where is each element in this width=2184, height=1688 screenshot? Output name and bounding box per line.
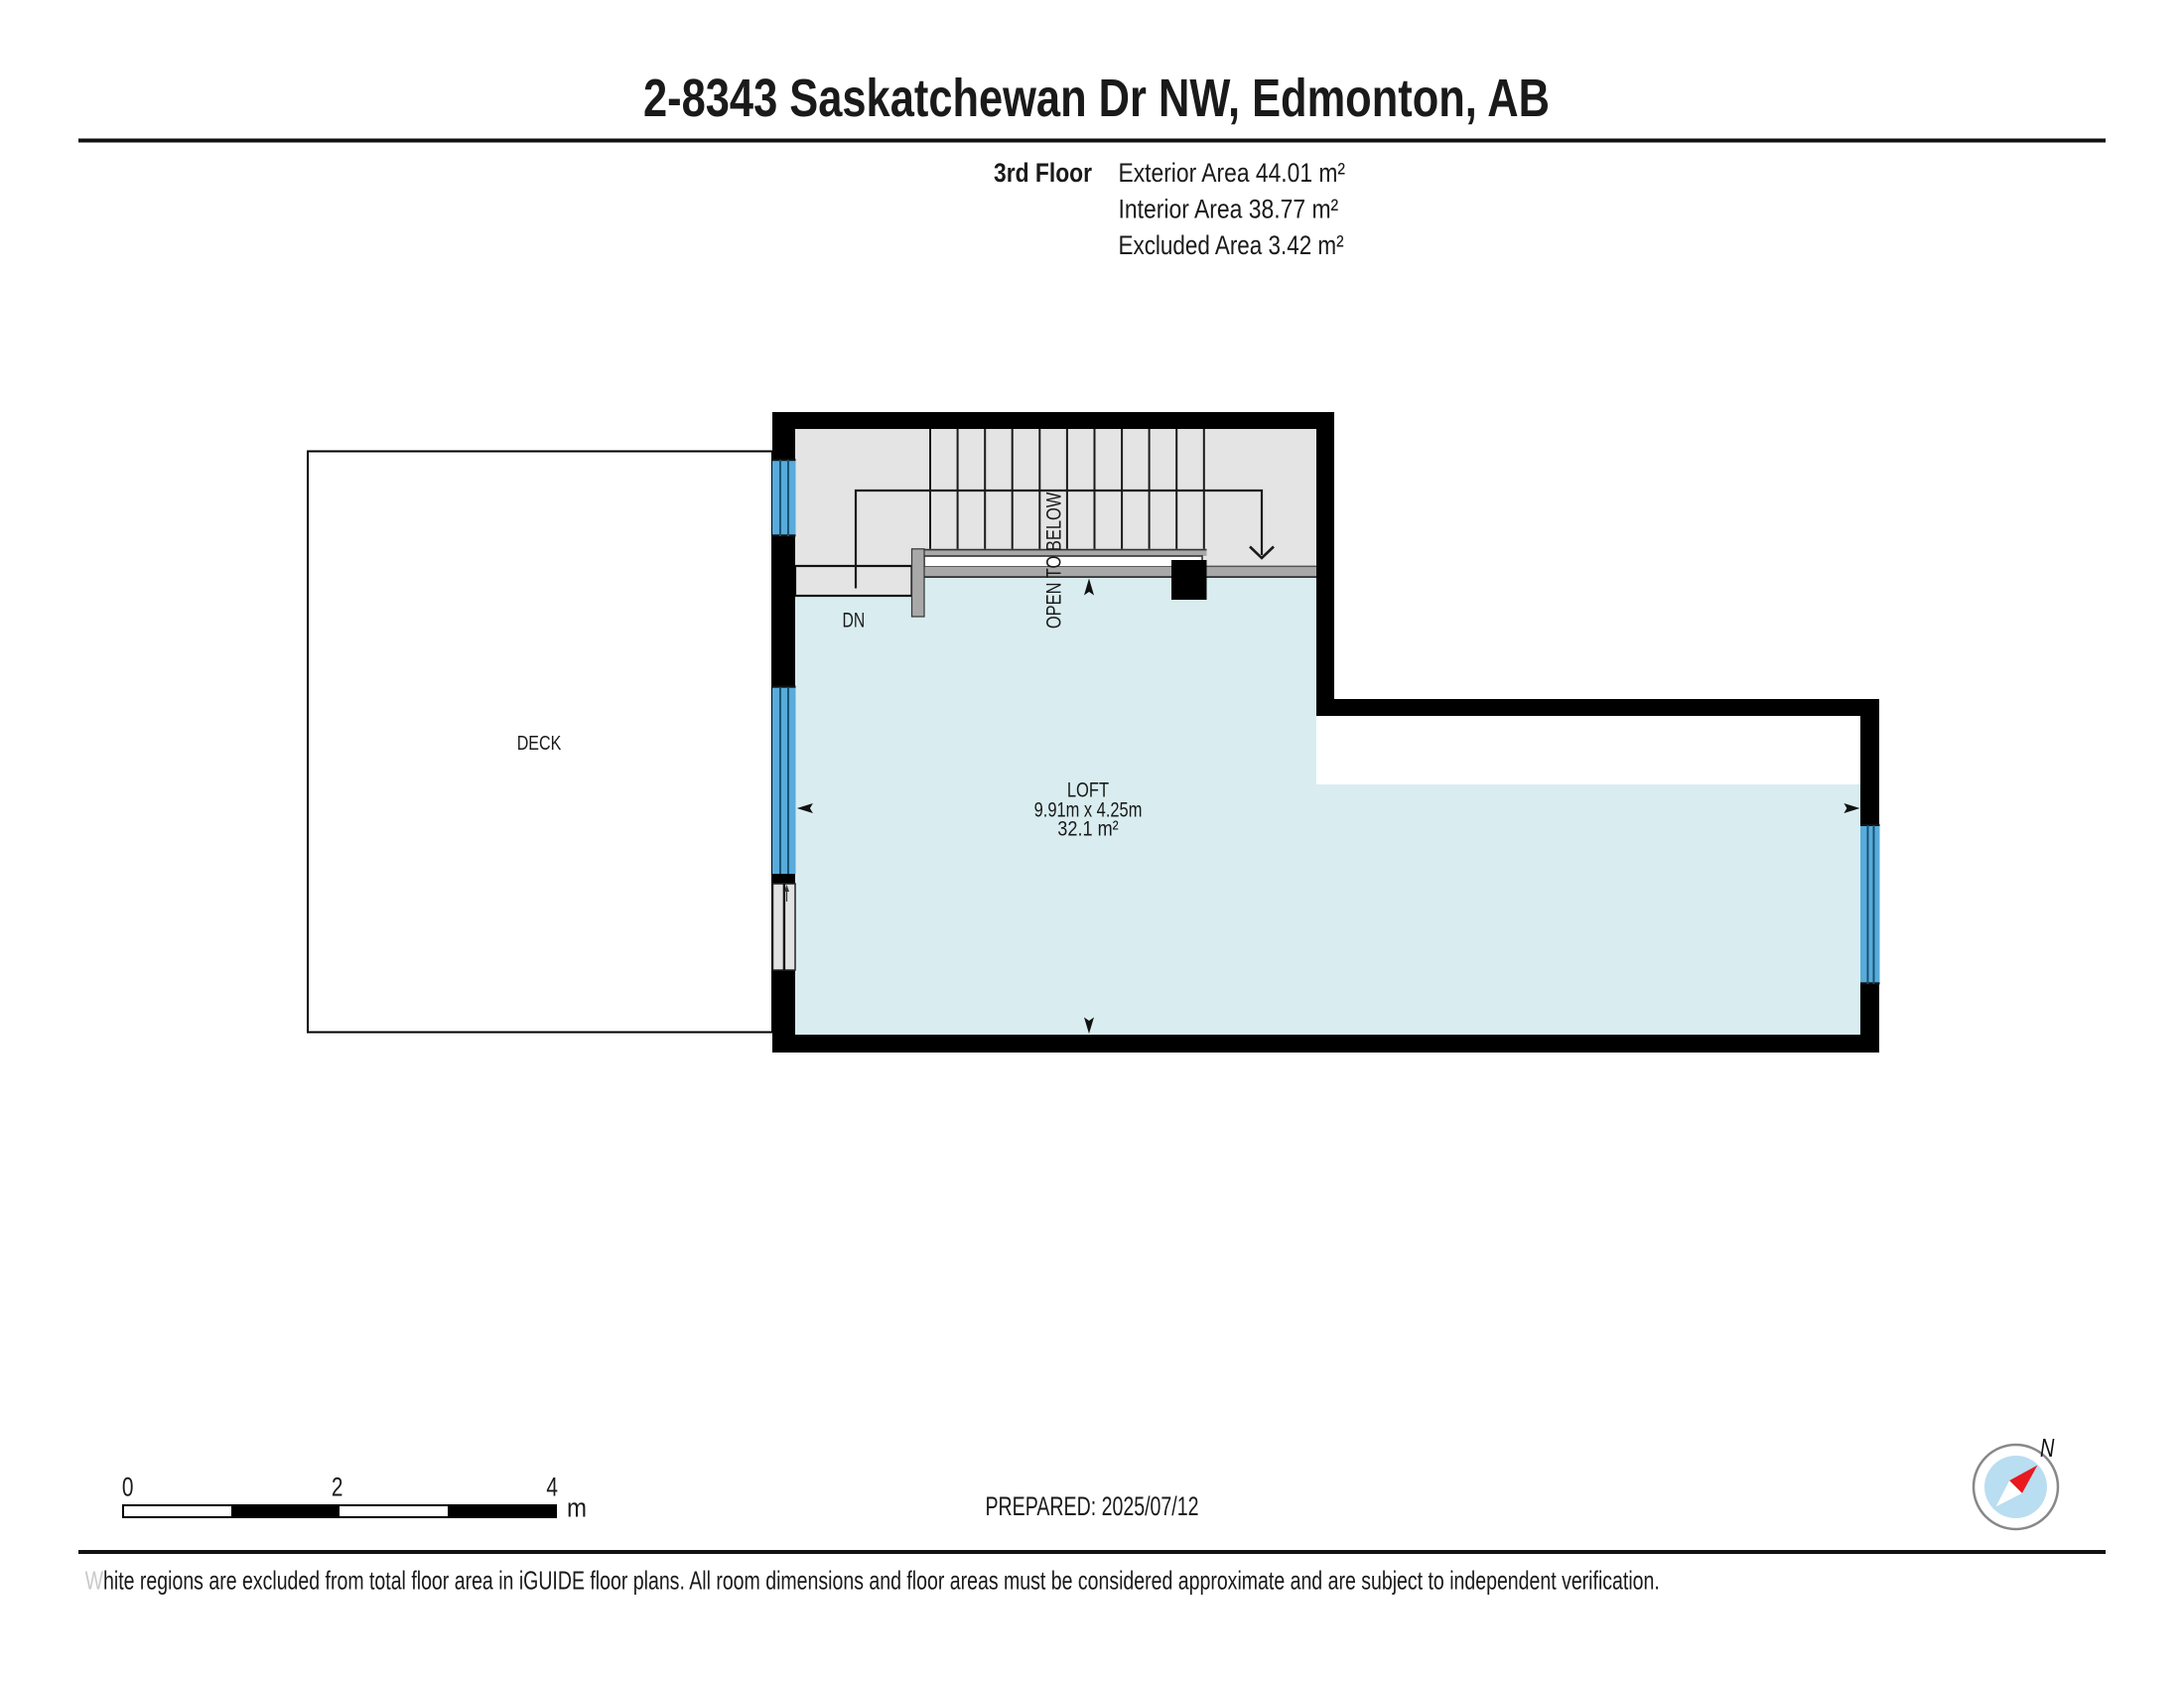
svg-text:0: 0: [122, 1473, 134, 1502]
svg-text:DN: DN: [843, 610, 866, 633]
svg-text:DECK: DECK: [517, 732, 562, 755]
svg-text:2-8343 Saskatchewan Dr NW, Edm: 2-8343 Saskatchewan Dr NW, Edmonton, AB: [643, 69, 1550, 128]
svg-text:Interior Area 38.77 m²: Interior Area 38.77 m²: [1119, 195, 1339, 224]
svg-text:N: N: [2040, 1433, 2055, 1463]
svg-text:4: 4: [546, 1473, 558, 1502]
svg-text:Exterior Area 44.01 m²: Exterior Area 44.01 m²: [1119, 158, 1346, 188]
svg-text:3rd Floor: 3rd Floor: [994, 158, 1092, 188]
svg-text:PREPARED: 2025/07/12: PREPARED: 2025/07/12: [986, 1491, 1199, 1521]
svg-text:32.1 m²: 32.1 m²: [1057, 818, 1118, 841]
svg-text:OPEN TO BELOW: OPEN TO BELOW: [1042, 492, 1066, 629]
svg-text:m: m: [567, 1493, 587, 1523]
svg-text:White regions are excluded fro: White regions are excluded from total fl…: [85, 1565, 1660, 1595]
svg-text:2: 2: [332, 1473, 343, 1502]
svg-text:Excluded Area 3.42 m²: Excluded Area 3.42 m²: [1119, 230, 1344, 260]
